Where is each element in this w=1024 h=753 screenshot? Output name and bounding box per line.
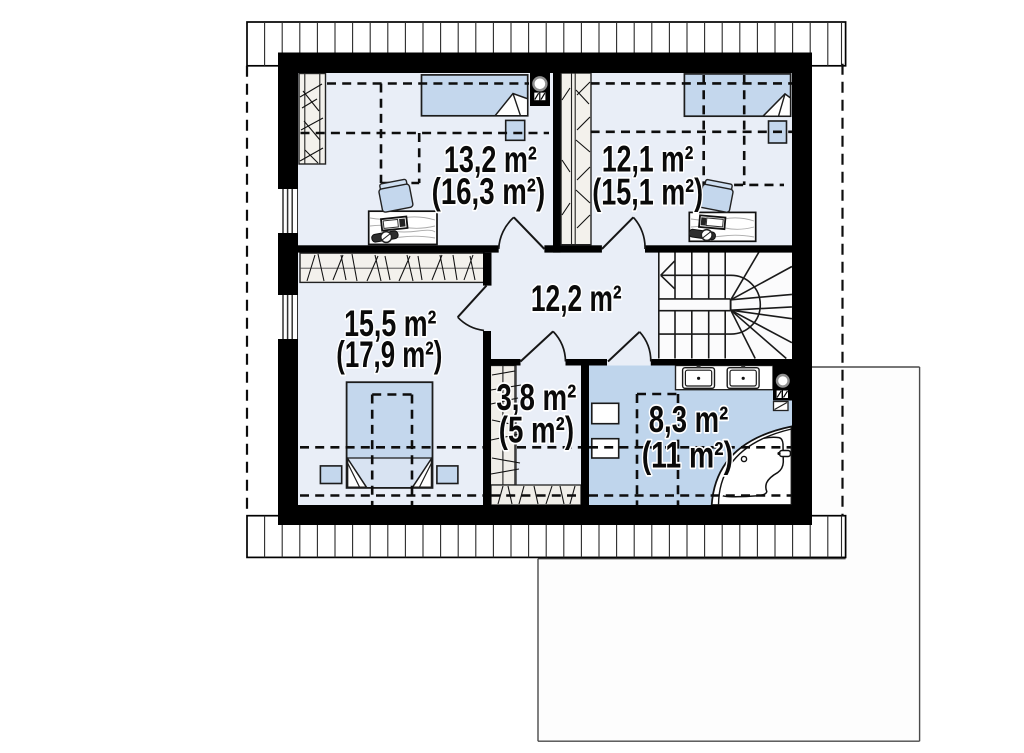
svg-text:(17,9 m²): (17,9 m²) <box>336 334 442 375</box>
svg-text:12,2 m²: 12,2 m² <box>531 278 622 319</box>
svg-text:(16,3 m²): (16,3 m²) <box>432 171 546 212</box>
svg-text:8,3 m²: 8,3 m² <box>649 399 729 440</box>
svg-text:(15,1 m²): (15,1 m²) <box>592 172 703 213</box>
svg-text:(5 m²): (5 m²) <box>499 410 574 451</box>
svg-text:(11 m²): (11 m²) <box>642 435 733 476</box>
